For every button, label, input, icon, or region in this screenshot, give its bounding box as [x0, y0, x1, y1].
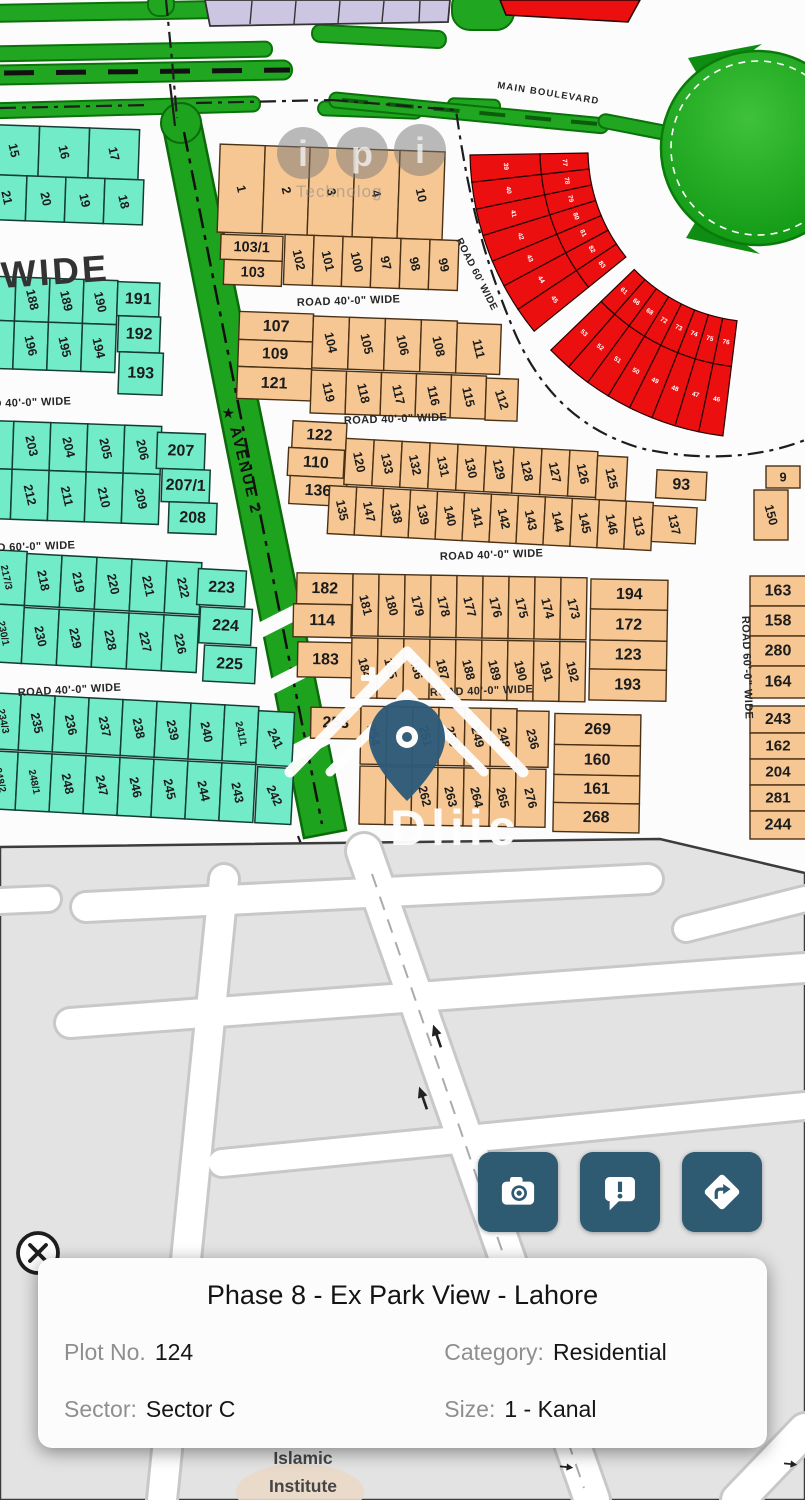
plot-cell[interactable]: 280 — [750, 636, 805, 666]
svg-text:281: 281 — [765, 790, 790, 807]
plot-cell[interactable]: 241/1 — [222, 705, 259, 763]
plot-cell[interactable]: 217/3 — [0, 549, 27, 605]
plot-cell[interactable]: 117 — [380, 372, 416, 416]
plot-cell[interactable]: 138 — [381, 488, 410, 537]
svg-text:WIDE: WIDE — [0, 248, 111, 296]
plot-cell[interactable]: 141 — [462, 493, 491, 542]
plot-cell[interactable]: 211 — [47, 471, 86, 522]
plot-cell[interactable]: 100 — [341, 236, 372, 287]
plot-cell[interactable]: 98 — [399, 238, 430, 289]
plot-cell[interactable]: 230 — [21, 608, 59, 666]
plot-cell[interactable] — [359, 766, 386, 824]
svg-text:223: 223 — [208, 579, 236, 597]
plot-cell[interactable]: 236 — [52, 696, 89, 754]
block-orange_rc1: 163158280164 — [750, 576, 805, 698]
plot-cell[interactable]: 207 — [156, 432, 205, 470]
plot-cell[interactable]: 194 — [590, 579, 668, 610]
plot-cell[interactable]: 1 — [217, 144, 265, 234]
plot-cell[interactable]: 137 — [651, 506, 697, 544]
plot-cell[interactable]: 179 — [404, 575, 431, 637]
plot-cell[interactable]: 107 — [239, 311, 314, 342]
plot-cell[interactable]: 239 — [154, 701, 191, 759]
svg-text:194: 194 — [616, 586, 643, 603]
svg-text:i: i — [415, 130, 425, 171]
plot-cell[interactable]: 19 — [64, 177, 105, 223]
plot-cell[interactable]: 204 — [750, 759, 805, 785]
svg-text:77: 77 — [561, 159, 568, 167]
svg-text:193: 193 — [614, 676, 641, 693]
plot-cell[interactable]: 238 — [120, 700, 157, 758]
plot-cell[interactable]: 178 — [430, 575, 457, 637]
plot-cell[interactable]: 122 — [292, 421, 347, 451]
plot-cell[interactable]: 247 — [83, 756, 120, 816]
directions-button[interactable] — [682, 1152, 762, 1232]
plot-cell[interactable]: 191 — [533, 641, 560, 701]
svg-text:207/1: 207/1 — [165, 477, 206, 495]
svg-text:164: 164 — [765, 674, 792, 691]
plot-cell[interactable]: 225 — [203, 645, 257, 684]
plot-cell[interactable]: 220 — [94, 557, 132, 611]
plot-cell[interactable]: 102 — [283, 234, 314, 285]
plot-cell[interactable]: 120 — [344, 438, 374, 485]
plot-cell[interactable]: 268 — [553, 802, 639, 832]
svg-text:39: 39 — [502, 163, 509, 171]
svg-text:114: 114 — [309, 612, 335, 629]
block-teal_d: 217/3218219220221222223230/1230229228227… — [0, 549, 261, 683]
plot-cell[interactable]: 133 — [372, 440, 402, 487]
lavender-block — [205, 0, 450, 26]
plot-cell[interactable]: 205 — [86, 424, 125, 473]
plot-cell[interactable]: 128 — [512, 447, 542, 494]
plot-cell[interactable]: 248/1 — [15, 752, 52, 812]
plot-cell[interactable]: 150 — [754, 490, 788, 540]
plot-cell[interactable]: 146 — [597, 500, 626, 549]
svg-text:172: 172 — [615, 616, 642, 633]
plot-cell[interactable]: 112 — [485, 378, 518, 421]
svg-text:136: 136 — [304, 482, 332, 500]
plot-cell[interactable]: 175 — [508, 576, 535, 638]
plot-cell[interactable]: 192 — [559, 641, 586, 701]
svg-text:204: 204 — [765, 764, 791, 781]
plot-cell[interactable]: 127 — [540, 449, 570, 496]
plot-cell[interactable]: 210 — [84, 472, 123, 523]
svg-text:Technolog: Technolog — [296, 182, 383, 201]
svg-text:182: 182 — [311, 580, 338, 597]
plot-cell[interactable]: 21 — [0, 174, 27, 220]
plot-cell[interactable]: 204 — [49, 423, 88, 472]
svg-text:121: 121 — [260, 375, 287, 393]
plot-cell[interactable]: 244 — [185, 761, 222, 821]
svg-text:183: 183 — [312, 651, 339, 668]
plot-cell[interactable]: 139 — [408, 490, 437, 539]
svg-text:110: 110 — [303, 454, 330, 472]
svg-text:280: 280 — [765, 643, 792, 660]
category-field: Category:Residential — [444, 1339, 743, 1366]
plot-cell[interactable]: 181 — [352, 574, 379, 636]
plot-cell[interactable]: 161 — [553, 774, 639, 803]
plot-cell[interactable]: 223 — [197, 569, 247, 607]
plot-cell[interactable]: 103/1 — [220, 234, 283, 261]
plot-cell[interactable]: 236 — [516, 711, 549, 768]
plot-cell[interactable]: 235 — [18, 694, 55, 752]
svg-text:243: 243 — [765, 711, 791, 728]
svg-text:40: 40 — [504, 186, 512, 195]
plot-cell[interactable]: 111 — [456, 323, 502, 375]
plot-cell[interactable]: 219 — [59, 555, 97, 609]
plot-cell[interactable]: 177 — [456, 576, 483, 638]
svg-text:107: 107 — [262, 318, 289, 336]
svg-text:160: 160 — [584, 751, 611, 768]
plot-cell[interactable]: 145 — [570, 498, 599, 547]
plot-details: Plot No.124 Category:Residential Sector:… — [38, 1311, 767, 1423]
plot-cell[interactable]: 93 — [656, 470, 707, 501]
plot-cell[interactable]: 126 — [568, 450, 598, 497]
svg-text:163: 163 — [765, 583, 792, 600]
plot-cell[interactable]: 99 — [428, 240, 459, 291]
svg-text:207: 207 — [167, 442, 194, 460]
svg-text:103/1: 103/1 — [233, 239, 270, 256]
block-teal_a: 15161721201918 — [0, 125, 146, 225]
svg-text:269: 269 — [584, 721, 611, 738]
plot-cell[interactable]: 135 — [327, 486, 356, 535]
plot-number-field: Plot No.124 — [64, 1339, 444, 1366]
plot-cell[interactable]: 132 — [400, 441, 430, 488]
svg-text:9: 9 — [779, 470, 786, 485]
svg-text:268: 268 — [583, 809, 610, 826]
svg-text:78: 78 — [562, 177, 570, 186]
report-icon — [597, 1169, 643, 1215]
plot-cell[interactable]: 183 — [297, 642, 354, 678]
plot-cell[interactable]: 237 — [86, 698, 123, 756]
svg-text:192: 192 — [125, 325, 152, 343]
plot-cell[interactable]: 203 — [12, 421, 51, 470]
plot-cell[interactable]: 245 — [151, 759, 188, 819]
plot-cell[interactable]: 222 — [164, 561, 202, 615]
plot-cell[interactable]: 104 — [312, 316, 350, 369]
svg-text:Dliic: Dliic — [390, 800, 521, 856]
svg-text:225: 225 — [216, 655, 244, 673]
plot-cell[interactable]: 101 — [312, 235, 343, 286]
size-field: Size:1 - Kanal — [444, 1396, 743, 1423]
plot-cell[interactable]: 243 — [219, 763, 256, 823]
plot-cell[interactable]: 16 — [38, 126, 90, 178]
plot-cell[interactable]: 192 — [117, 316, 160, 353]
svg-text:208: 208 — [179, 509, 206, 527]
poi-label: Islamic — [273, 1448, 333, 1468]
plot-cell[interactable]: 174 — [534, 577, 561, 639]
directions-icon — [699, 1169, 745, 1215]
svg-text:193: 193 — [127, 365, 154, 383]
plot-cell[interactable]: 164 — [750, 666, 805, 698]
plot-map-app: 1516172120191818818919019119219619519419… — [0, 0, 805, 1500]
plot-cell[interactable]: 158 — [750, 606, 805, 636]
plot-cell[interactable]: 191 — [117, 282, 160, 317]
plot-cell[interactable]: 246 — [117, 757, 154, 817]
svg-text:161: 161 — [583, 780, 610, 797]
plot-cell[interactable]: 230/1 — [0, 603, 24, 663]
plot-cell[interactable]: 173 — [560, 577, 587, 639]
svg-text:122: 122 — [306, 426, 333, 444]
plot-cell[interactable]: 129 — [484, 446, 514, 493]
svg-text:109: 109 — [262, 345, 289, 363]
plot-cell[interactable]: 195 — [47, 322, 83, 371]
plot-cell[interactable]: 119 — [310, 370, 346, 414]
plot-cell[interactable]: 227 — [126, 613, 164, 671]
plot-cell[interactable]: 108 — [420, 320, 458, 373]
plot-cell[interactable]: 118 — [345, 371, 381, 415]
svg-text:103: 103 — [240, 264, 265, 281]
plot-info-card: Phase 8 - Ex Park View - Lahore Plot No.… — [38, 1258, 767, 1448]
plot-cell[interactable]: 281 — [750, 785, 805, 811]
plot-cell[interactable]: 130 — [456, 444, 486, 491]
plot-cell[interactable]: 113 — [624, 501, 653, 550]
plot-cell[interactable]: 20 — [25, 176, 66, 222]
plot-cell[interactable]: 162 — [750, 733, 805, 759]
plot-cell[interactable]: 121 — [237, 366, 312, 401]
plot-cell[interactable]: 18 — [103, 179, 144, 225]
page-title: Phase 8 - Ex Park View - Lahore — [38, 1280, 767, 1311]
plot-cell[interactable]: 140 — [435, 491, 464, 540]
sector-field: Sector:Sector C — [64, 1396, 444, 1423]
plot-cell[interactable]: 243 — [750, 706, 805, 733]
plot-cell[interactable]: 125 — [595, 456, 627, 502]
plot-cell[interactable]: 17 — [88, 128, 140, 180]
plot-cell[interactable]: 144 — [543, 497, 572, 546]
plot-cell[interactable]: 97 — [370, 237, 401, 288]
plot-cell[interactable]: 123 — [589, 640, 666, 670]
plot-cell[interactable]: 226 — [161, 615, 199, 673]
plot-cell[interactable]: 228 — [91, 611, 129, 669]
svg-text:123: 123 — [615, 646, 642, 663]
plot-cell[interactable]: 207/1 — [161, 469, 210, 504]
plot-cell[interactable]: 221 — [129, 559, 167, 613]
plot-cell[interactable]: 212 — [10, 469, 49, 520]
camera-icon — [495, 1169, 541, 1215]
plot-cell[interactable]: 182 — [297, 573, 354, 605]
svg-text:191: 191 — [125, 290, 152, 308]
plot-cell[interactable]: 110 — [287, 447, 344, 478]
svg-text:p: p — [351, 133, 373, 174]
camera-button[interactable] — [478, 1152, 558, 1232]
block-teal_c: 203204205206207207/1208212211210209 — [0, 420, 220, 534]
plot-cell[interactable]: 114 — [293, 604, 352, 638]
plot-cell[interactable]: 131 — [428, 443, 458, 490]
svg-text:162: 162 — [765, 738, 790, 755]
svg-text:93: 93 — [672, 476, 691, 494]
plot-cell[interactable]: 147 — [354, 487, 383, 536]
plot-cell[interactable]: 115 — [450, 375, 486, 419]
plot-cell[interactable]: 194 — [81, 323, 117, 372]
plot-cell[interactable]: 180 — [378, 574, 405, 636]
plot-cell[interactable]: 244 — [750, 811, 805, 839]
plot-cell[interactable]: 218 — [24, 554, 62, 608]
poi-label: Institute — [269, 1476, 337, 1496]
plot-cell[interactable]: 248 — [49, 754, 86, 814]
plot-cell[interactable]: 193 — [589, 669, 667, 701]
plot-cell[interactable]: 109 — [238, 339, 313, 369]
plot-cell[interactable]: 172 — [590, 609, 668, 641]
svg-text:244: 244 — [765, 817, 792, 834]
plot-cell[interactable]: 208 — [168, 502, 217, 535]
block-orange_rc2: 243162204281244 — [750, 706, 805, 839]
plot-cell[interactable]: 106 — [384, 319, 422, 372]
plot-cell[interactable]: 196 — [13, 321, 49, 370]
block-teal_e: 234/3235236237238239240241/1241248/2248/… — [0, 692, 297, 824]
plot-cell[interactable]: 160 — [554, 744, 641, 775]
plot-cell[interactable]: 269 — [554, 713, 641, 745]
report-button[interactable] — [580, 1152, 660, 1232]
plot-cell[interactable]: 163 — [750, 576, 805, 606]
plot-cell[interactable]: 229 — [56, 609, 94, 667]
plot-cell[interactable]: 9 — [766, 466, 800, 488]
plot-cell[interactable]: 224 — [199, 607, 253, 646]
plot-cell[interactable]: 241 — [256, 711, 295, 767]
plot-cell[interactable]: 142 — [489, 494, 518, 543]
plot-cell[interactable]: 15 — [0, 125, 40, 177]
plot-cell[interactable]: 193 — [118, 352, 163, 396]
plot-cell[interactable]: 103 — [223, 259, 282, 286]
plot-cell[interactable]: 240 — [188, 703, 225, 761]
plot-cell[interactable]: 176 — [482, 576, 509, 638]
svg-text:i: i — [298, 133, 308, 174]
plot-cell[interactable]: 143 — [516, 496, 545, 545]
svg-text:224: 224 — [212, 617, 240, 635]
svg-text:158: 158 — [765, 613, 792, 630]
plot-cell[interactable]: 209 — [121, 473, 160, 524]
plot-cell[interactable]: 105 — [348, 317, 386, 370]
